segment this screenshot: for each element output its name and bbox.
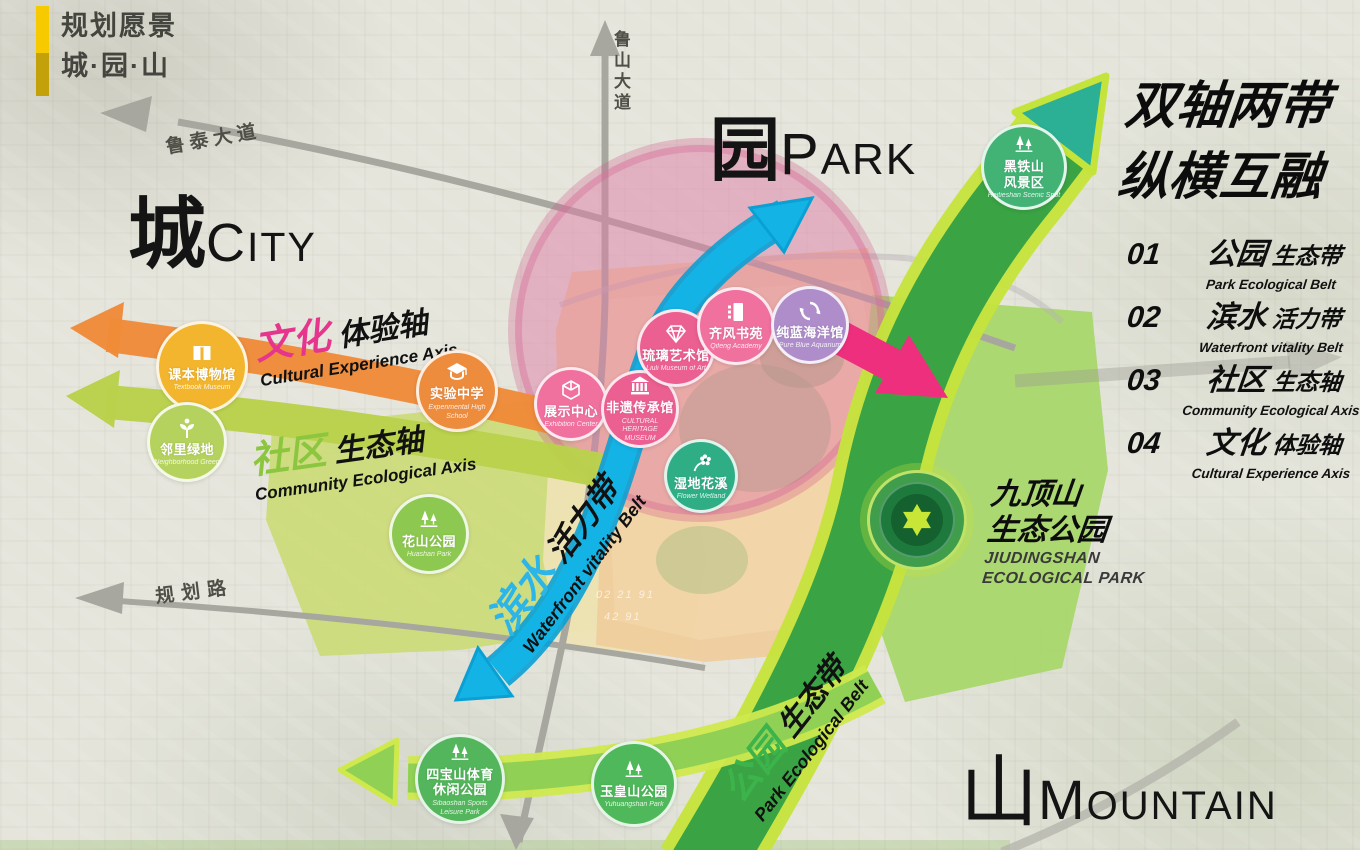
legend-cn: 社区 <box>1205 364 1268 397</box>
jiudingshan-label: 九顶山 生态公园 JIUDINGSHAN ECOLOGICAL PARK <box>981 477 1155 589</box>
legend-en: Waterfront vitality Belt <box>1177 340 1360 355</box>
parcel-number: 02 21 91 <box>596 589 655 601</box>
jiudingshan-core <box>891 494 943 546</box>
legend: 01 公园生态带 Park Ecological Belt 02 滨水活力带 W… <box>1126 238 1360 490</box>
zone-city-en: CITY <box>206 212 317 274</box>
zone-city-cn: 城 <box>128 190 206 278</box>
axis-cn-sub: 生态轴 <box>332 424 426 469</box>
legend-item-cultural-axis: 04 文化体验轴 Cultural Experience Axis <box>1123 427 1360 481</box>
planning-vision-map: 02 21 91 42 91 规划愿景 城·园·山 城CITY 园PARK 山M… <box>0 0 1360 850</box>
road-label-lushan-avenue: 鲁山大道 <box>608 30 633 114</box>
jiudingshan-ring <box>879 482 955 558</box>
title-line1: 双轴两带 <box>1122 70 1333 141</box>
jiudingshan-en2: ECOLOGICAL PARK <box>981 569 1146 589</box>
legend-en: Park Ecological Belt <box>1177 277 1360 292</box>
legend-cn-sub: 活力带 <box>1271 306 1343 332</box>
legend-number: 01 <box>1123 238 1183 292</box>
legend-number: 02 <box>1123 301 1183 355</box>
axis-cn: 社区 <box>248 430 329 482</box>
logo-line1: 规划愿景 <box>61 6 177 46</box>
zone-label-mountain: 山MOUNTAIN <box>960 730 1278 842</box>
zone-label-city: 城CITY <box>128 172 317 284</box>
legend-cn-sub: 生态带 <box>1271 243 1343 269</box>
jiudingshan-en1: JIUDINGSHAN <box>983 549 1148 569</box>
marker-jiudingshan-ecological-park <box>867 470 967 570</box>
legend-cn-sub: 体验轴 <box>1271 432 1343 458</box>
legend-en: Community Ecological Axis <box>1177 403 1360 418</box>
zone-park-en: PARK <box>780 121 917 188</box>
page-title: 双轴两带 纵横互融 <box>1115 70 1334 212</box>
legend-item-waterfront-belt: 02 滨水活力带 Waterfront vitality Belt <box>1123 301 1360 355</box>
legend-en: Cultural Experience Axis <box>1177 466 1360 481</box>
zone-park-cn: 园 <box>710 111 780 189</box>
logo-line2: 城·园·山 <box>61 46 177 86</box>
star-icon <box>898 501 936 539</box>
title-line2: 纵横互融 <box>1115 141 1326 212</box>
logo: 规划愿景 城·园·山 <box>36 6 177 96</box>
legend-cn: 公园 <box>1205 238 1268 271</box>
logo-text: 规划愿景 城·园·山 <box>61 6 177 96</box>
legend-cn: 文化 <box>1205 427 1268 460</box>
legend-item-community-axis: 03 社区生态轴 Community Ecological Axis <box>1123 364 1360 418</box>
legend-cn: 滨水 <box>1205 301 1268 334</box>
zone-label-park: 园PARK <box>710 94 917 195</box>
legend-item-park-belt: 01 公园生态带 Park Ecological Belt <box>1123 238 1360 292</box>
logo-accent-bar <box>36 6 49 96</box>
jiudingshan-cn2: 生态公园 <box>985 513 1151 549</box>
legend-cn-sub: 生态轴 <box>1271 369 1343 395</box>
legend-number: 03 <box>1123 364 1183 418</box>
legend-number: 04 <box>1123 427 1183 481</box>
zone-mountain-cn: 山 <box>960 748 1038 836</box>
parcel-number: 42 91 <box>604 611 642 623</box>
zone-mountain-en: MOUNTAIN <box>1038 767 1278 832</box>
